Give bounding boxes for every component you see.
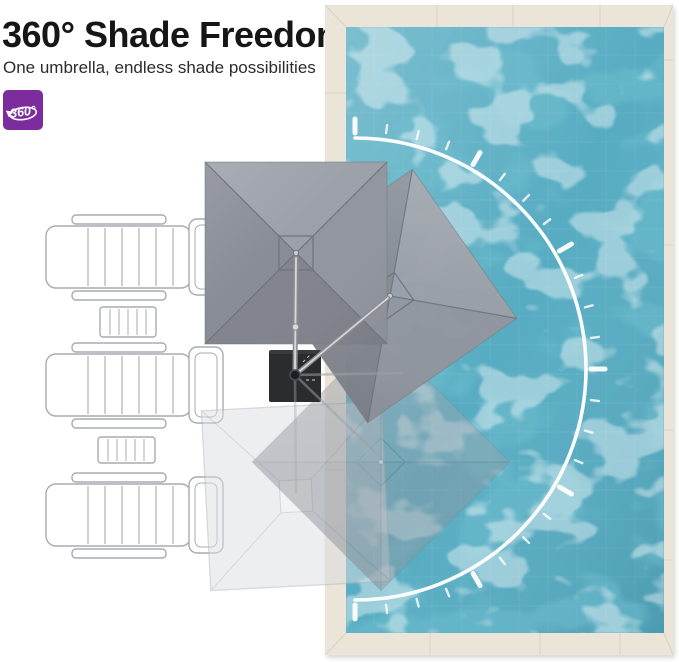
side-table (100, 307, 156, 337)
scene-canvas (0, 0, 679, 662)
minor-tick (386, 605, 387, 613)
patio-furniture (46, 215, 223, 558)
lounger (46, 343, 223, 428)
arm-ghost-down (295, 375, 296, 492)
pole-joint (292, 324, 298, 330)
infographic: 360° Shade Freedom One umbrella, endless… (0, 0, 679, 662)
minor-tick (386, 125, 387, 133)
lounger (46, 473, 223, 558)
side-table (98, 437, 155, 463)
minor-tick (591, 337, 599, 338)
pole-hub (290, 370, 300, 380)
minor-tick (591, 400, 599, 401)
lounger (46, 215, 223, 300)
